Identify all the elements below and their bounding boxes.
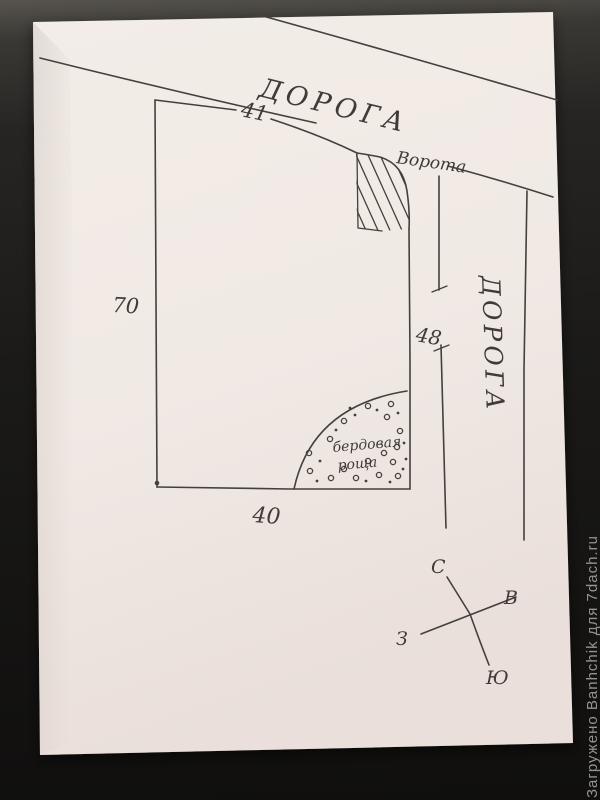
photo-of-hand-drawn-plan: ДОРОГА 41 Ворота 70 48 ДОРОГА 40 бердова…: [0, 0, 600, 800]
site-watermark: Загружено Banhchik для 7dach.ru: [584, 535, 600, 798]
compass-south-label: Ю: [485, 667, 509, 689]
dimension-left: 70: [112, 293, 140, 318]
corner-ink-dot: [155, 481, 160, 486]
compass-north-label: С: [431, 556, 446, 578]
compass-west-label: З: [396, 628, 408, 650]
right-road-label: ДОРОГА: [476, 274, 510, 414]
compass-east-label: В: [503, 587, 518, 609]
dimension-bottom: 40: [251, 503, 282, 530]
dimension-right: 48: [413, 322, 443, 350]
sketch-canvas: ДОРОГА 41 Ворота 70 48 ДОРОГА 40 бердова…: [0, 0, 600, 800]
